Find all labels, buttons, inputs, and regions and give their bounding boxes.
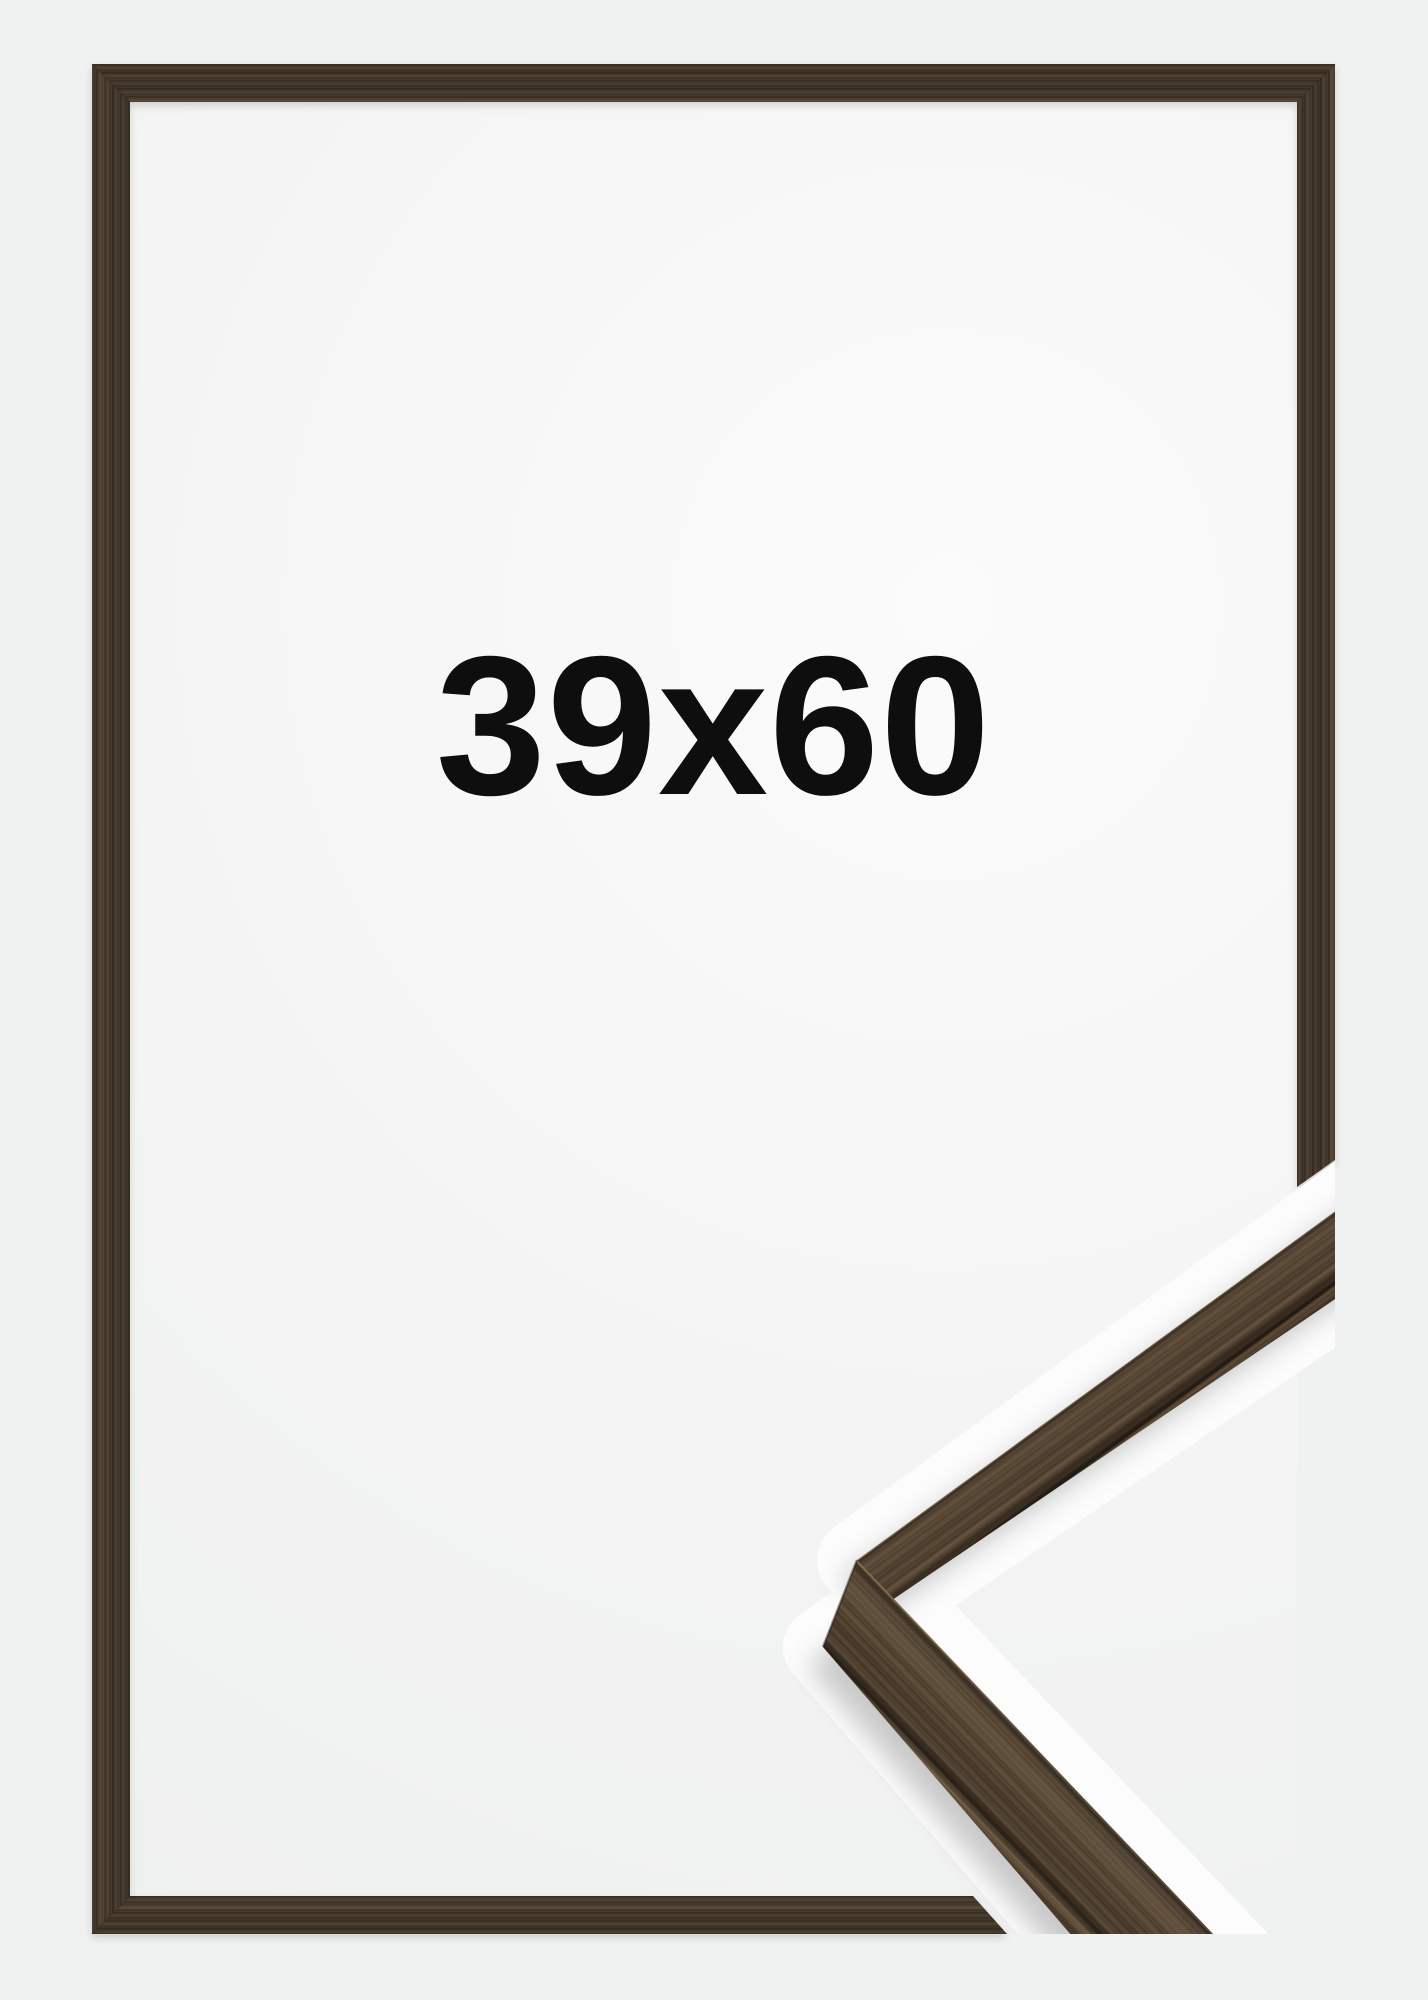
frame-artwork xyxy=(0,0,1428,2000)
corner-detail-upper-bar xyxy=(823,1164,1400,1647)
frame-mitre-seams xyxy=(92,64,1335,1934)
frame-left-bar xyxy=(92,64,130,1934)
frame-top-bar xyxy=(92,64,1335,102)
corner-detail xyxy=(807,1164,1400,1998)
frame-right-bar xyxy=(1297,64,1335,1187)
frame-bottom-bar xyxy=(92,1896,1007,1934)
frame-outline xyxy=(92,64,1335,1934)
product-image: 39x60 xyxy=(0,0,1428,2000)
size-label: 39x60 xyxy=(130,627,1297,825)
